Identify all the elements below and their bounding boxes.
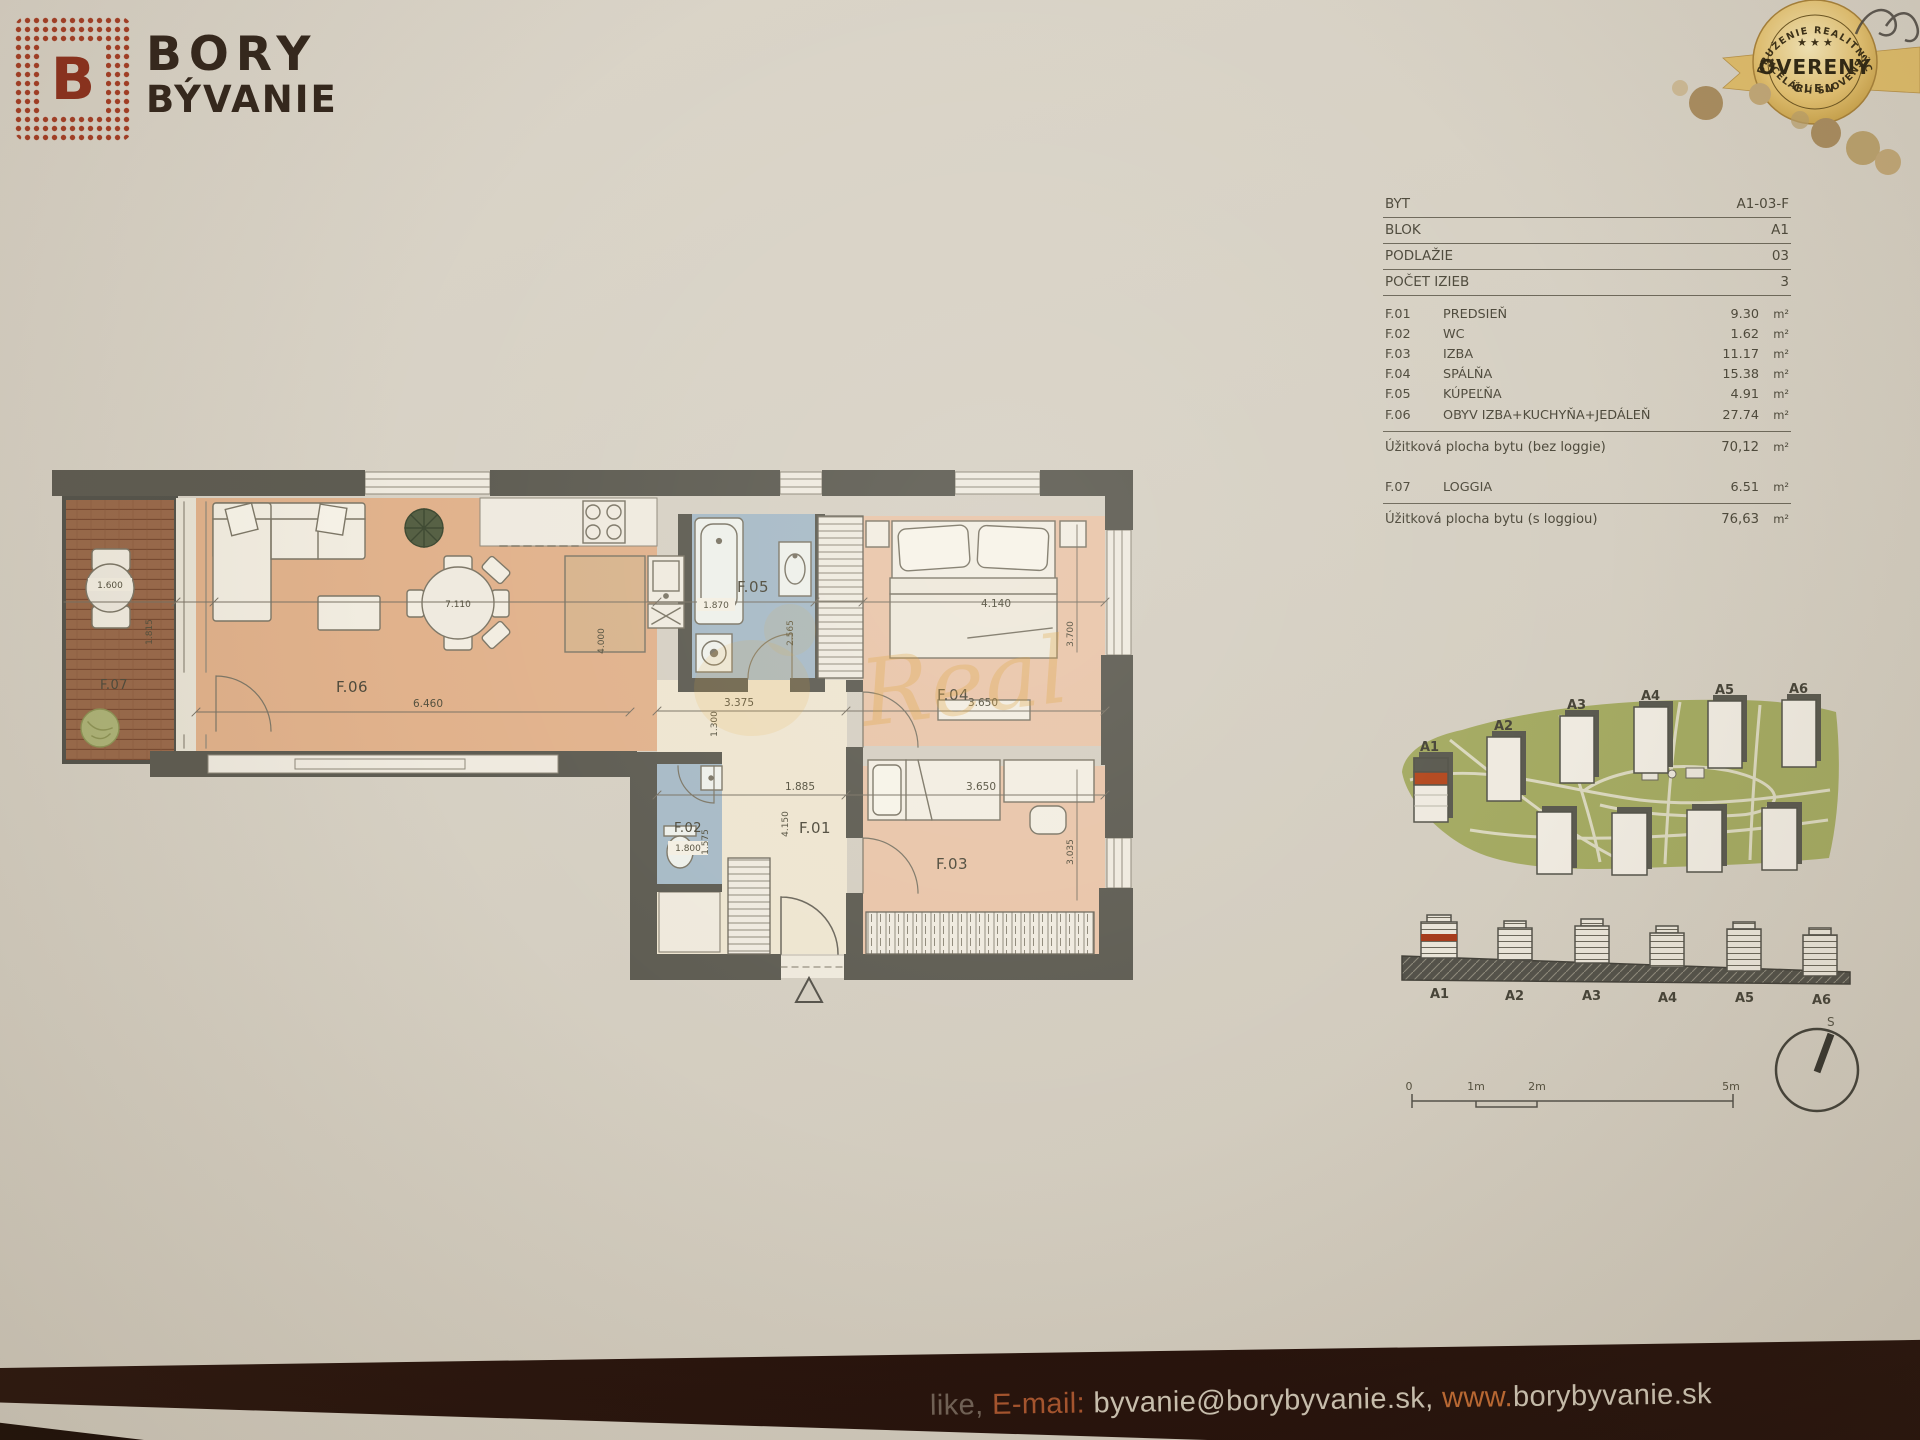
elev-label-a2: A2 bbox=[1505, 989, 1524, 1004]
elev-label-a5: A5 bbox=[1735, 991, 1754, 1006]
storage-niche bbox=[659, 892, 720, 952]
dim-living-width: 6.460 bbox=[413, 698, 443, 710]
dim-dining-table: 7.110 bbox=[445, 600, 471, 610]
badge-arc-top: ZDRUŽENIE REALITNÝCH bbox=[0, 0, 1874, 75]
elev-label-a6: A6 bbox=[1812, 993, 1831, 1008]
badge-arc-bottom: KANCELÁRIÍ SLOVENSKA bbox=[0, 0, 1866, 97]
dim-bed-width: 4.140 bbox=[981, 598, 1011, 610]
room-label-f01: F.01 bbox=[799, 819, 831, 837]
dim-wc-depth: 1.575 bbox=[701, 829, 711, 855]
room-label-f05: F.05 bbox=[737, 578, 769, 596]
room-label-f06: F.06 bbox=[336, 678, 368, 696]
dim-loggia-table: 1.600 bbox=[97, 581, 123, 591]
dim-hall-lower-width: 1.885 bbox=[785, 781, 815, 793]
room-label-f02: F.02 bbox=[674, 821, 702, 836]
scale-0: 0 bbox=[1406, 1080, 1413, 1093]
compass-icon: S bbox=[1776, 1015, 1858, 1111]
floor-plan: 1.600 1.815 7.110 6.460 4.000 1.870 2.56… bbox=[52, 470, 1133, 1002]
room-label-f03: F.03 bbox=[936, 855, 968, 873]
elevation-diagram: A1 A2 A3 A4 A5 A6 bbox=[1402, 915, 1850, 1008]
ground-slope bbox=[1402, 956, 1850, 984]
footer-email-link[interactable]: byvanie@borybyvanie.sk, bbox=[1093, 1382, 1442, 1419]
kitchen-counter bbox=[480, 498, 657, 546]
room-label-f07: F.07 bbox=[100, 678, 128, 693]
dim-bathtub: 1.870 bbox=[703, 601, 729, 611]
loggia-floor bbox=[64, 498, 176, 762]
site-building-a1 bbox=[1414, 752, 1453, 822]
dim-wc-width: 1.800 bbox=[675, 844, 701, 854]
dim-loggia-depth: 1.815 bbox=[145, 619, 155, 645]
french-window bbox=[208, 755, 558, 773]
elev-label-a3: A3 bbox=[1582, 989, 1601, 1004]
site-label-a2: A2 bbox=[1494, 719, 1513, 734]
a1-highlight-floor bbox=[1421, 934, 1457, 941]
site-plan: A1 A2 A3 A4 A5 A6 bbox=[1402, 682, 1839, 875]
scale-bar: 0 1m 2m 5m bbox=[1406, 1080, 1740, 1108]
badge-stars-icon: ★ ★ ★ bbox=[1797, 37, 1833, 49]
verified-badge: ZDRUŽENIE REALITNÝCH ★ ★ ★ OVERENÝ ČLEN … bbox=[0, 0, 1920, 124]
footer-email-label: E-mail: bbox=[983, 1387, 1093, 1421]
footer-website-link[interactable]: borybyvanie.sk bbox=[1513, 1378, 1712, 1413]
photographed-floorplan-page: B BORY BÝVANIE BYT A1-03-F BLOK A1 PODLA… bbox=[0, 0, 1920, 1440]
hall-wardrobe bbox=[728, 858, 770, 954]
dim-room3-width: 3.650 bbox=[966, 781, 996, 793]
footer-fragment: like, bbox=[930, 1389, 984, 1422]
elev-label-a1: A1 bbox=[1430, 987, 1449, 1002]
dim-room3-depth: 3.035 bbox=[1066, 839, 1076, 865]
site-label-a4: A4 bbox=[1641, 689, 1660, 704]
scale-5m: 5m bbox=[1722, 1080, 1740, 1093]
dim-kitchen-island: 4.000 bbox=[597, 628, 607, 654]
site-label-a3: A3 bbox=[1567, 698, 1586, 713]
scale-2m: 2m bbox=[1528, 1080, 1546, 1093]
site-label-a1: A1 bbox=[1420, 740, 1439, 755]
dim-bedroom-depth: 3.700 bbox=[1066, 621, 1076, 647]
compass-north-label: S bbox=[1827, 1015, 1835, 1029]
elev-label-a4: A4 bbox=[1658, 991, 1677, 1006]
room3-wardrobe bbox=[866, 912, 1094, 954]
site-label-a6: A6 bbox=[1789, 682, 1808, 697]
site-label-a5: A5 bbox=[1715, 683, 1734, 698]
footer-www-prefix[interactable]: www. bbox=[1442, 1381, 1513, 1414]
drawings-canvas: 1.600 1.815 7.110 6.460 4.000 1.870 2.56… bbox=[0, 0, 1920, 1440]
scale-1m: 1m bbox=[1467, 1080, 1485, 1093]
dim-hall-depth: 4.150 bbox=[781, 811, 791, 837]
